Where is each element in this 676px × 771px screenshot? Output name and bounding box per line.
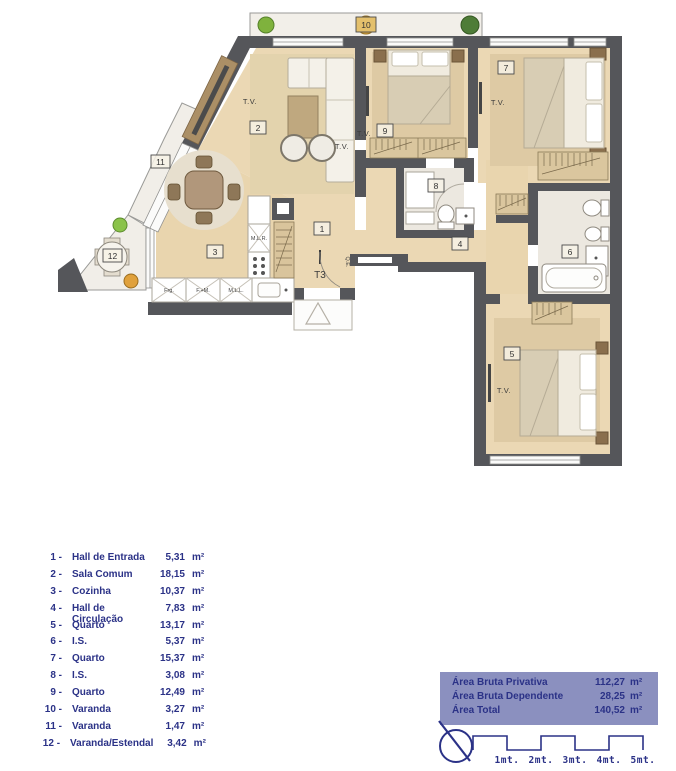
legend-unit: m² — [185, 603, 214, 614]
pouf — [281, 135, 307, 161]
plant-icon — [461, 16, 479, 34]
room5-furniture — [488, 302, 608, 444]
wardrobe — [538, 152, 608, 180]
room-number: 6 — [568, 247, 573, 257]
legend-area: 1,47 — [149, 721, 185, 732]
wardrobe — [532, 302, 572, 324]
summary-value: 140,52 — [594, 705, 625, 716]
legend-name: Sala Comum — [62, 569, 149, 580]
chair — [228, 184, 240, 200]
summary-row: Área Total140,52m² — [452, 705, 648, 719]
nightstand — [596, 342, 608, 354]
typology-label: T3 — [314, 270, 326, 281]
chair — [196, 156, 212, 168]
legend-row: 3 -Cozinha10,37m² — [36, 586, 214, 603]
legend-unit: m² — [185, 569, 214, 580]
summary-label: Área Bruta Dependente — [452, 691, 600, 702]
pouf — [309, 135, 335, 161]
room-label-1: 1 — [314, 222, 330, 235]
room-number: 9 — [383, 126, 388, 136]
room-number: 2 — [256, 123, 261, 133]
plant-icon — [258, 17, 274, 33]
room-label-7: 7 — [498, 61, 514, 74]
room-number: 7 — [504, 63, 509, 73]
legend-area: 7,83 — [149, 603, 185, 614]
tv-label: T.V. — [335, 142, 349, 151]
floor-plan: 1 2 3 4 5 6 7 8 9 10 11 12 T.V. T.V. T.V… — [0, 0, 676, 540]
scale-line — [473, 736, 643, 750]
pillow — [580, 354, 596, 390]
nightstand — [374, 50, 386, 62]
tv-label: T.V. — [497, 386, 511, 395]
scale-label: 4mt. — [597, 755, 622, 766]
dining-table — [185, 171, 223, 209]
legend-area: 13,17 — [149, 620, 185, 631]
corridor-closet — [496, 194, 528, 214]
legend-area: 10,37 — [149, 586, 185, 597]
entrance-landing — [294, 300, 352, 330]
plant-icon — [124, 274, 138, 288]
legend-unit: m² — [187, 738, 214, 749]
legend-name: Quarto — [62, 687, 149, 698]
chair — [168, 184, 180, 200]
legend-unit: m² — [185, 704, 214, 715]
legend-num: 11 - — [36, 721, 62, 732]
legend-num: 7 - — [36, 653, 62, 664]
duvet — [388, 76, 450, 124]
legend-unit: m² — [185, 721, 214, 732]
legend-name: Varanda — [62, 721, 149, 732]
summary-value: 28,25 — [600, 691, 625, 702]
legend-row: 11 -Varanda1,47m² — [36, 721, 214, 738]
wall-tv — [479, 82, 482, 114]
pillow — [586, 62, 602, 100]
summary-value: 112,27 — [595, 677, 625, 688]
room-label-2: 2 — [250, 121, 266, 134]
toilet — [438, 205, 454, 223]
legend-area: 5,31 — [149, 552, 185, 563]
legend-area: 5,37 — [149, 636, 185, 647]
legend-unit: m² — [185, 586, 214, 597]
room-label-9: 9 — [377, 124, 393, 137]
pillow — [392, 52, 418, 66]
legend-row: 1 -Hall de Entrada5,31m² — [36, 552, 214, 569]
wardrobe — [370, 138, 466, 158]
legend-row: 8 -I.S.3,08m² — [36, 670, 214, 687]
scale-label: 1mt. — [495, 755, 520, 766]
legend-area: 15,37 — [149, 653, 185, 664]
legend-row: 12 -Varanda/Estendal3,42m² — [36, 738, 214, 755]
tv-label: T.V. — [491, 98, 505, 107]
legend-area: 3,42 — [153, 738, 186, 749]
fm-label: F.+M. — [196, 288, 210, 294]
corridor-floor — [486, 160, 528, 294]
room-number: 3 — [213, 247, 218, 257]
room-label-10: 10 — [356, 17, 376, 32]
nightstand — [596, 432, 608, 444]
legend-row: 4 -Hall de Circulação7,83m² — [36, 603, 214, 620]
frg-label: Frg. — [164, 288, 174, 294]
legend-unit: m² — [185, 636, 214, 647]
wall-tv — [488, 364, 491, 402]
legend-num: 1 - — [36, 552, 62, 563]
room-number: 5 — [510, 349, 515, 359]
legend-num: 2 - — [36, 569, 62, 580]
legend-num: 8 - — [36, 670, 62, 681]
tv-label: T.V. — [357, 129, 371, 138]
legend-num: 9 - — [36, 687, 62, 698]
room-label-11: 11 — [151, 155, 170, 168]
room-number: 4 — [458, 239, 463, 249]
legend-area: 3,27 — [149, 704, 185, 715]
sofa — [326, 58, 354, 182]
wall-niche — [358, 257, 392, 263]
legend-name: Quarto — [62, 653, 149, 664]
faucet — [285, 289, 288, 292]
room-legend: 1 -Hall de Entrada5,31m² 2 -Sala Comum18… — [36, 552, 214, 755]
mll-label: M.L.L. — [228, 288, 244, 294]
plant-icon — [113, 218, 127, 232]
legend-area: 18,15 — [149, 569, 185, 580]
legend-unit: m² — [185, 552, 214, 563]
toilet — [583, 200, 601, 216]
legend-unit: m² — [185, 620, 214, 631]
scale-label: 3mt. — [563, 755, 588, 766]
chair — [196, 212, 212, 224]
legend-num: 6 - — [36, 636, 62, 647]
ottoman — [288, 96, 318, 138]
legend-row: 2 -Sala Comum18,15m² — [36, 569, 214, 586]
legend-row: 7 -Quarto15,37m² — [36, 653, 214, 670]
summary-row: Área Bruta Dependente28,25m² — [452, 691, 648, 705]
legend-name: Hall de Entrada — [62, 552, 149, 563]
legend-num: 5 - — [36, 620, 62, 631]
legend-row: 6 -I.S.5,37m² — [36, 636, 214, 653]
room-label-5: 5 — [504, 347, 520, 360]
legend-area: 3,08 — [149, 670, 185, 681]
legend-num: 3 - — [36, 586, 62, 597]
room-number: 1 — [320, 224, 325, 234]
legend-area: 12,49 — [149, 687, 185, 698]
pillow — [580, 394, 596, 430]
nightstand — [452, 50, 464, 62]
summary-row: Área Bruta Privativa112,27m² — [452, 677, 648, 691]
pillow — [586, 104, 602, 142]
duvet — [520, 350, 558, 436]
summary-unit: m² — [625, 691, 648, 702]
room-label-6: 6 — [562, 245, 578, 258]
legend-unit: m² — [185, 670, 214, 681]
room-number: 11 — [156, 157, 165, 167]
legend-name: I.S. — [62, 636, 149, 647]
legend-num: 4 - — [36, 603, 62, 614]
scale-label: 2mt. — [529, 755, 554, 766]
bidet — [585, 227, 601, 241]
room-label-3: 3 — [207, 245, 223, 258]
room9-furniture — [370, 50, 466, 158]
room-label-8: 8 — [428, 179, 444, 192]
room-number: 12 — [108, 251, 118, 261]
legend-row: 5 -Quarto13,17m² — [36, 620, 214, 637]
room-number: 10 — [361, 20, 371, 30]
hall-closet — [274, 222, 294, 278]
room-number: 8 — [434, 181, 439, 191]
legend-unit: m² — [185, 687, 214, 698]
legend-name: Quarto — [62, 620, 149, 631]
legend-name: I.S. — [62, 670, 149, 681]
legend-num: 10 - — [36, 704, 62, 715]
room-label-12: 12 — [103, 249, 122, 262]
summary-label: Área Bruta Privativa — [452, 677, 595, 688]
legend-row: 10 -Varanda3,27m² — [36, 704, 214, 721]
qe-label: Q.E. — [344, 256, 350, 267]
legend-name: Varanda — [62, 704, 149, 715]
legend-num: 12 - — [36, 738, 60, 749]
scale-label: 5mt. — [631, 755, 656, 766]
hall-closet-zone-floor — [366, 168, 396, 262]
legend-name: Cozinha — [62, 586, 149, 597]
legend-row: 9 -Quarto12,49m² — [36, 687, 214, 704]
scale-bar: 1mt. 2mt. 3mt. 4mt. 5mt. — [468, 726, 668, 768]
tv-label: T.V. — [243, 97, 257, 106]
summary-unit: m² — [625, 677, 648, 688]
room-label-4: 4 — [452, 237, 468, 250]
wall-tv — [366, 86, 369, 116]
legend-unit: m² — [185, 653, 214, 664]
summary-unit: m² — [625, 705, 648, 716]
wall-niche — [277, 203, 289, 214]
mlr-label: M.L.R. — [251, 236, 268, 242]
kitchen-sink — [258, 283, 280, 297]
duvet — [524, 58, 564, 148]
pillow — [422, 52, 448, 66]
legend-name: Varanda/Estendal — [60, 738, 153, 749]
